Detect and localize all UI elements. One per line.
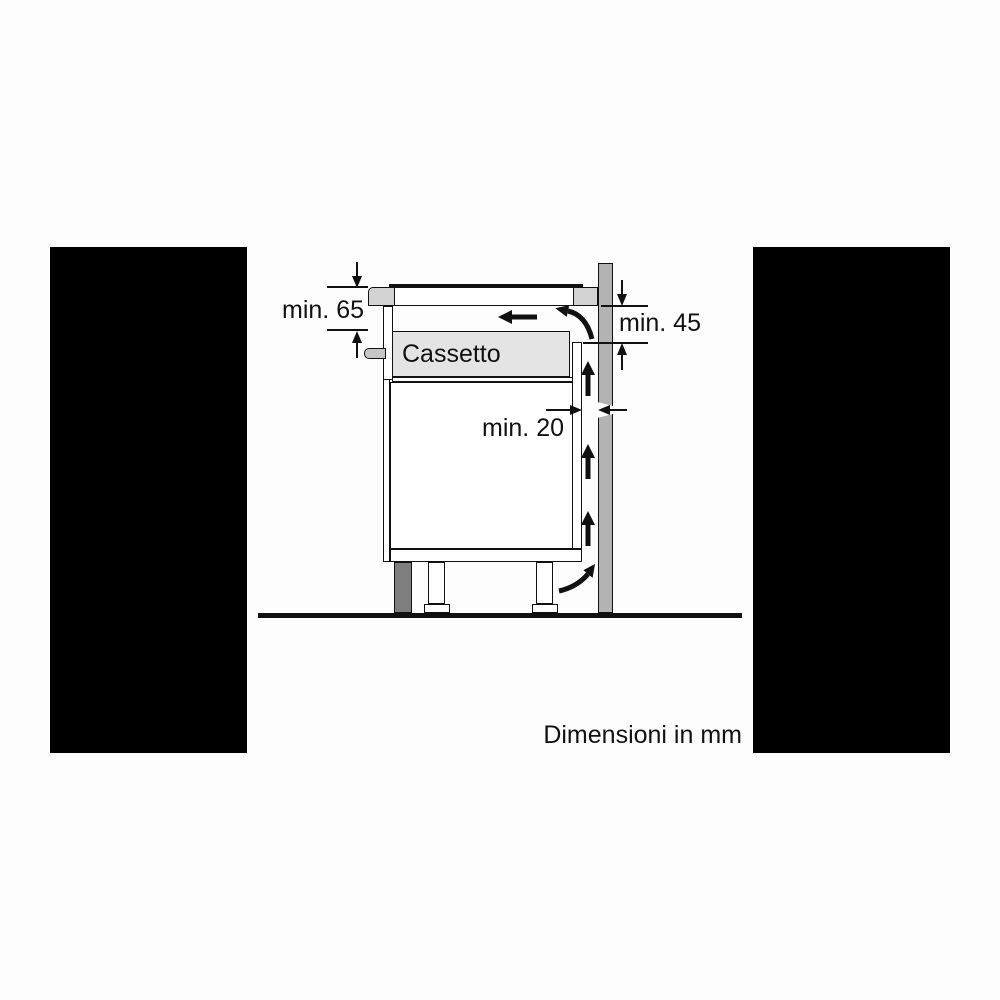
arrow-up-icon: [352, 331, 362, 343]
right-leg-foot: [532, 604, 558, 613]
hob-glass-surface: [389, 284, 583, 287]
worktop-left-block: [368, 287, 396, 306]
airflow-up-icon: [581, 511, 595, 525]
airflow-curve-bottom: [559, 574, 588, 591]
dim-label-min45: min. 45: [619, 307, 701, 339]
left-leg-stem: [428, 562, 445, 604]
worktop-right-block: [573, 287, 598, 306]
dim-label-min20: min. 20: [470, 412, 564, 444]
cabinet-back-panel: [572, 342, 582, 549]
airflow-curve-top: [568, 311, 592, 339]
arrow-down-icon: [352, 276, 362, 288]
floor-line: [258, 613, 742, 618]
left-leg-foot: [424, 604, 450, 613]
hob-body: [394, 287, 575, 306]
right-leg-stem: [536, 562, 553, 604]
drawer-label: Cassetto: [402, 338, 501, 370]
arrow-up-icon: [617, 343, 627, 355]
drawer-handle: [364, 348, 386, 359]
right-black-mask: [753, 247, 950, 753]
left-black-mask: [50, 247, 247, 753]
units-note: Dimensioni in mm: [520, 719, 742, 751]
arrow-down-icon: [617, 294, 627, 306]
dim-label-min65: min. 65: [270, 294, 364, 326]
plinth: [394, 562, 412, 613]
drawer-box: Cassetto: [392, 331, 570, 377]
cabinet-left-side: [383, 379, 390, 562]
airflow-up-icon: [581, 361, 595, 375]
airflow-up-icon: [581, 444, 595, 458]
airflow-left-icon: [498, 310, 512, 324]
cabinet-bottom-panel: [390, 549, 582, 562]
installation-diagram: Cassetto: [0, 0, 1000, 1000]
cabinet-interior: [390, 382, 573, 549]
wall-section: [598, 263, 613, 613]
